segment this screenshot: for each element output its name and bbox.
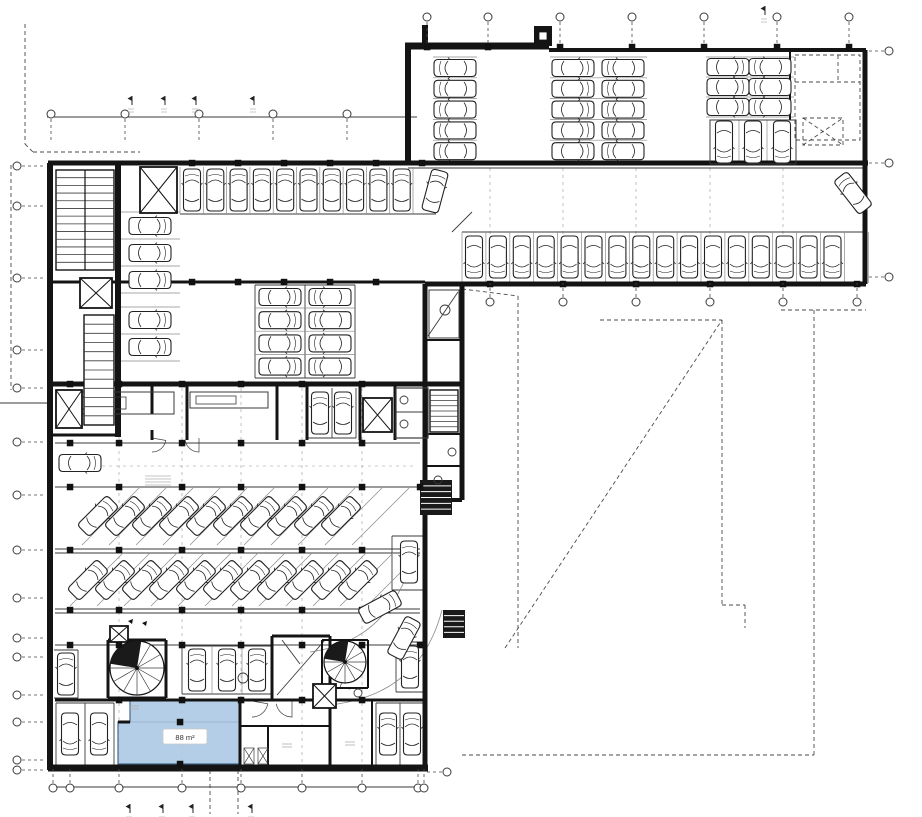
car-icon bbox=[583, 236, 604, 278]
grid-axis-bubble bbox=[47, 110, 55, 118]
grid-axis-bubble bbox=[779, 298, 787, 306]
grid-axis-bubble bbox=[13, 756, 21, 764]
car-icon bbox=[714, 121, 735, 163]
structural-column bbox=[299, 381, 306, 388]
structural-column bbox=[116, 697, 123, 704]
structural-column bbox=[299, 697, 306, 704]
grid-axis-bubble bbox=[343, 110, 351, 118]
structural-column bbox=[116, 547, 123, 554]
structural-column bbox=[179, 484, 186, 491]
car-icon bbox=[298, 169, 319, 211]
grid-axis-bubble bbox=[853, 298, 861, 306]
structural-column bbox=[299, 484, 306, 491]
car-icon bbox=[552, 99, 594, 120]
car-icon bbox=[259, 287, 301, 308]
structural-column bbox=[116, 381, 123, 388]
car-icon bbox=[434, 120, 476, 141]
car-icon bbox=[309, 333, 351, 354]
structural-column bbox=[373, 160, 380, 167]
structural-column bbox=[238, 547, 245, 554]
survey-mark-flag bbox=[159, 804, 164, 809]
structural-column bbox=[177, 761, 184, 768]
structural-column bbox=[373, 279, 380, 286]
grid-axis-bubble bbox=[13, 691, 21, 699]
car-icon bbox=[56, 653, 77, 695]
structural-column bbox=[238, 607, 245, 614]
grid-axis-bubble bbox=[237, 784, 245, 792]
grid-axis-bubble bbox=[49, 784, 57, 792]
grid-axis-bubble bbox=[885, 273, 893, 281]
car-icon bbox=[217, 649, 238, 691]
structural-column bbox=[281, 160, 288, 167]
grid-axis-bubble bbox=[885, 47, 893, 55]
survey-mark-flag bbox=[192, 96, 197, 101]
grid-axis-bubble bbox=[121, 110, 129, 118]
spiral-stair-center bbox=[135, 666, 139, 670]
car-icon bbox=[602, 58, 644, 79]
structural-column bbox=[189, 160, 196, 167]
car-icon bbox=[602, 78, 644, 99]
survey-mark-flag bbox=[128, 96, 133, 101]
car-icon bbox=[703, 236, 724, 278]
car-icon bbox=[247, 649, 268, 691]
structural-column bbox=[179, 642, 186, 649]
grid-axis-bubble bbox=[298, 784, 306, 792]
spiral-stair-wedge bbox=[324, 641, 348, 662]
structural-column bbox=[424, 44, 431, 51]
car-icon bbox=[822, 236, 843, 278]
car-icon bbox=[419, 168, 450, 214]
door-swing-arc bbox=[185, 438, 199, 452]
car-icon bbox=[59, 453, 101, 474]
car-icon bbox=[228, 169, 249, 211]
door-swing-arc bbox=[152, 438, 166, 452]
grid-axis-bubble bbox=[13, 202, 21, 210]
grid-axis-bubble bbox=[195, 110, 203, 118]
structural-column bbox=[238, 697, 245, 704]
dashed-boundary-line bbox=[25, 144, 33, 152]
survey-mark-flag bbox=[761, 6, 766, 11]
car-icon bbox=[251, 169, 272, 211]
structural-column bbox=[179, 697, 186, 704]
car-icon bbox=[511, 236, 532, 278]
survey-mark-flag bbox=[126, 804, 131, 809]
car-icon bbox=[89, 713, 110, 755]
grid-axis-bubble bbox=[13, 491, 21, 499]
floor-line bbox=[452, 212, 472, 232]
fixture-circle bbox=[354, 689, 362, 697]
structural-column bbox=[177, 719, 184, 726]
fixture-circle bbox=[448, 448, 456, 456]
car-icon bbox=[535, 236, 556, 278]
car-icon bbox=[798, 236, 819, 278]
structural-column bbox=[116, 440, 123, 447]
car-icon bbox=[434, 78, 476, 99]
grid-axis-bubble bbox=[420, 784, 428, 792]
survey-mark-flag bbox=[250, 96, 255, 101]
car-icon bbox=[743, 121, 764, 163]
structural-column bbox=[299, 440, 306, 447]
car-icon bbox=[655, 236, 676, 278]
structural-column bbox=[359, 642, 366, 649]
structural-column bbox=[238, 484, 245, 491]
spiral-stair-center bbox=[343, 660, 347, 664]
grid-axis-bubble bbox=[423, 13, 431, 21]
structural-column bbox=[67, 547, 74, 554]
structural-column bbox=[281, 279, 288, 286]
structural-column bbox=[67, 484, 74, 491]
structural-column bbox=[67, 381, 74, 388]
structural-column bbox=[701, 44, 708, 51]
car-icon bbox=[749, 97, 791, 118]
grid-axis-bubble bbox=[885, 159, 893, 167]
direction-arrow bbox=[128, 619, 133, 624]
structural-column bbox=[299, 642, 306, 649]
grid-axis-bubble bbox=[13, 384, 21, 392]
stair-dark-block bbox=[443, 610, 465, 638]
car-icon bbox=[434, 58, 476, 79]
fixture-circle bbox=[400, 420, 408, 428]
car-icon bbox=[552, 120, 594, 141]
grid-axis-bubble bbox=[13, 634, 21, 642]
structural-column bbox=[116, 484, 123, 491]
structural-column bbox=[238, 642, 245, 649]
structural-column bbox=[179, 440, 186, 447]
grid-axis-bubble bbox=[358, 784, 366, 792]
structural-column bbox=[235, 279, 242, 286]
car-icon bbox=[552, 141, 594, 162]
grid-axis-bubble bbox=[13, 546, 21, 554]
floor-plan-page: 88 m² bbox=[0, 0, 922, 817]
grid-axis-bubble bbox=[13, 274, 21, 282]
structural-column bbox=[359, 547, 366, 554]
structural-column bbox=[116, 607, 123, 614]
structural-column bbox=[238, 440, 245, 447]
survey-mark-flag bbox=[161, 96, 166, 101]
grid-axis-bubble bbox=[486, 298, 494, 306]
structural-column bbox=[359, 697, 366, 704]
column-block-inner bbox=[539, 32, 547, 40]
structural-column bbox=[67, 642, 74, 649]
grid-axis-bubble bbox=[13, 346, 21, 354]
floor-line bbox=[282, 640, 300, 664]
structural-column bbox=[179, 547, 186, 554]
car-icon bbox=[602, 99, 644, 120]
car-icon bbox=[129, 216, 171, 237]
survey-mark-flag bbox=[248, 804, 253, 809]
car-icon bbox=[559, 236, 580, 278]
car-icon bbox=[357, 588, 404, 626]
fixture-circle bbox=[440, 305, 450, 315]
car-icon bbox=[321, 169, 342, 211]
car-icon bbox=[402, 713, 423, 755]
structural-column bbox=[179, 381, 186, 388]
door-swing-arc bbox=[276, 701, 292, 717]
dashed-boundary-line bbox=[505, 320, 722, 648]
car-icon bbox=[310, 392, 331, 434]
grid-axis-bubble bbox=[115, 784, 123, 792]
car-icon bbox=[259, 333, 301, 354]
car-icon bbox=[309, 356, 351, 377]
car-icon bbox=[129, 310, 171, 331]
grid-axis-bubble bbox=[66, 784, 74, 792]
car-icon bbox=[607, 236, 628, 278]
car-icon bbox=[774, 236, 795, 278]
grid-axis-bubble bbox=[484, 13, 492, 21]
car-icon bbox=[309, 287, 351, 308]
car-icon bbox=[368, 169, 389, 211]
car-icon bbox=[749, 77, 791, 98]
grid-axis-bubble bbox=[13, 766, 21, 774]
car-icon bbox=[378, 713, 399, 755]
structural-column bbox=[238, 381, 245, 388]
structural-column bbox=[417, 484, 424, 491]
grid-axis-bubble bbox=[178, 784, 186, 792]
car-icon bbox=[726, 236, 747, 278]
grid-axis-bubble bbox=[628, 13, 636, 21]
car-icon bbox=[309, 310, 351, 331]
grid-axis-bubble bbox=[706, 298, 714, 306]
car-icon bbox=[750, 236, 771, 278]
structural-column bbox=[179, 607, 186, 614]
grid-axis-bubble bbox=[700, 13, 708, 21]
structural-column bbox=[846, 44, 853, 51]
car-icon bbox=[60, 713, 81, 755]
structural-column bbox=[485, 44, 492, 51]
car-icon bbox=[487, 236, 508, 278]
room-fixture-outline bbox=[190, 392, 268, 408]
grid-axis-bubble bbox=[269, 110, 277, 118]
direction-arrow bbox=[142, 621, 147, 626]
car-icon bbox=[707, 57, 749, 78]
car-icon bbox=[129, 270, 171, 291]
car-icon bbox=[129, 243, 171, 264]
car-icon bbox=[259, 310, 301, 331]
grid-axis-bubble bbox=[13, 438, 21, 446]
structural-column bbox=[359, 484, 366, 491]
unit-label-group[interactable]: 88 m² bbox=[163, 729, 207, 744]
car-icon bbox=[631, 236, 652, 278]
car-icon bbox=[187, 649, 208, 691]
structural-column bbox=[359, 440, 366, 447]
structural-column bbox=[327, 279, 334, 286]
car-icon bbox=[205, 169, 226, 211]
structural-column bbox=[629, 44, 636, 51]
structural-column bbox=[774, 44, 781, 51]
structural-column bbox=[189, 279, 196, 286]
grid-axis-bubble bbox=[556, 13, 564, 21]
floor-line bbox=[428, 292, 458, 336]
car-icon bbox=[399, 541, 420, 583]
grid-axis-bubble bbox=[13, 162, 21, 170]
car-icon bbox=[602, 141, 644, 162]
car-icon bbox=[707, 97, 749, 118]
unit-area-label: 88 m² bbox=[175, 733, 195, 742]
grid-axis-bubble bbox=[443, 768, 451, 776]
car-icon bbox=[832, 170, 874, 216]
survey-mark-flag bbox=[189, 804, 194, 809]
grid-axis-bubble bbox=[13, 718, 21, 726]
structural-column bbox=[116, 642, 123, 649]
room-fixture-outline bbox=[196, 396, 236, 404]
car-icon bbox=[434, 99, 476, 120]
car-icon bbox=[434, 141, 476, 162]
car-icon bbox=[391, 169, 412, 211]
grid-axis-bubble bbox=[845, 13, 853, 21]
fixture-circle bbox=[238, 673, 248, 683]
car-icon bbox=[552, 58, 594, 79]
car-icon bbox=[345, 169, 366, 211]
structural-column bbox=[67, 440, 74, 447]
dashed-room-outline bbox=[795, 55, 860, 140]
grid-axis-bubble bbox=[773, 13, 781, 21]
structural-column bbox=[67, 607, 74, 614]
structural-column bbox=[419, 160, 426, 167]
structural-column bbox=[557, 44, 564, 51]
grid-axis-bubble bbox=[13, 594, 21, 602]
car-icon bbox=[707, 77, 749, 98]
structural-column bbox=[235, 160, 242, 167]
structural-column bbox=[299, 547, 306, 554]
structural-column bbox=[359, 381, 366, 388]
car-icon bbox=[129, 337, 171, 358]
car-icon bbox=[275, 169, 296, 211]
car-icon bbox=[333, 392, 354, 434]
car-icon bbox=[259, 356, 301, 377]
car-icon bbox=[772, 121, 793, 163]
car-icon bbox=[552, 78, 594, 99]
floor-plan-canvas: 88 m² bbox=[0, 0, 922, 817]
structural-column bbox=[299, 607, 306, 614]
structural-column bbox=[327, 160, 334, 167]
car-icon bbox=[464, 236, 485, 278]
grid-axis-bubble bbox=[13, 653, 21, 661]
grid-axis-bubble bbox=[632, 298, 640, 306]
grid-axis-bubble bbox=[559, 298, 567, 306]
car-icon bbox=[182, 169, 203, 211]
door-swing-arc bbox=[252, 701, 268, 717]
car-icon bbox=[749, 57, 791, 78]
fixture-circle bbox=[400, 396, 408, 404]
car-icon bbox=[679, 236, 700, 278]
car-icon bbox=[602, 120, 644, 141]
